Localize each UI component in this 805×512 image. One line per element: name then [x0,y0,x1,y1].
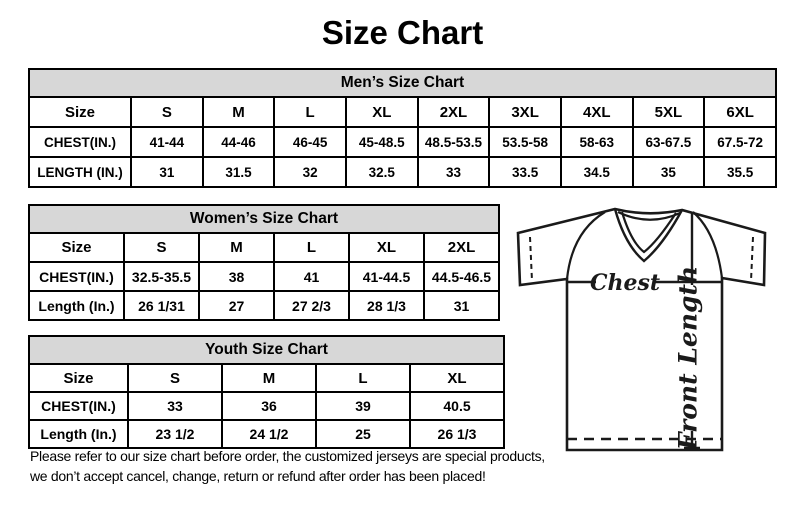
value-cell: 32 [274,157,346,187]
value-cell: 39 [316,392,410,420]
youth-size-table: Youth Size Chart SizeSMLXLCHEST(IN.)3336… [28,335,505,449]
value-cell: 25 [316,420,410,448]
womens-table-title: Women’s Size Chart [29,205,499,233]
value-cell: 36 [222,392,316,420]
table-row: Length (In.)23 1/224 1/22526 1/3 [29,420,504,448]
womens-size-table: Women’s Size Chart SizeSMLXL2XLCHEST(IN.… [28,204,500,321]
value-cell: S [128,364,222,392]
value-cell: 2XL [424,233,499,262]
womens-table-body: SizeSMLXL2XLCHEST(IN.)32.5-35.5384141-44… [29,233,499,320]
value-cell: 38 [199,262,274,291]
table-row: SizeSMLXL [29,364,504,392]
table-title-row: Women’s Size Chart [29,205,499,233]
value-cell: 41 [274,262,349,291]
value-cell: 26 1/3 [410,420,504,448]
value-cell: 31 [424,291,499,320]
value-cell: L [274,97,346,127]
chest-measure-label: Chest [590,270,660,296]
disclaimer-line-2: we don’t accept cancel, change, return o… [30,466,570,486]
table-row: SizeSMLXL2XL [29,233,499,262]
value-cell: 45-48.5 [346,127,418,157]
disclaimer-line-1: Please refer to our size chart before or… [30,446,570,466]
table-title-row: Men’s Size Chart [29,69,776,97]
value-cell: 32.5-35.5 [124,262,199,291]
table-row: CHEST(IN.)33363940.5 [29,392,504,420]
value-cell: 33 [418,157,490,187]
row-label-cell: Size [29,364,128,392]
value-cell: 44.5-46.5 [424,262,499,291]
value-cell: 35.5 [704,157,776,187]
value-cell: 46-45 [274,127,346,157]
value-cell: 41-44.5 [349,262,424,291]
value-cell: 27 2/3 [274,291,349,320]
table-title-row: Youth Size Chart [29,336,504,364]
value-cell: 33.5 [489,157,561,187]
value-cell: 31.5 [203,157,275,187]
value-cell: 27 [199,291,274,320]
row-label-cell: Length (In.) [29,420,128,448]
value-cell: 41-44 [131,127,203,157]
mens-size-table: Men’s Size Chart SizeSMLXL2XL3XL4XL5XL6X… [28,68,777,188]
table-row: Length (In.)26 1/312727 2/328 1/331 [29,291,499,320]
value-cell: L [316,364,410,392]
right-cuff-dashed-line [751,237,753,281]
value-cell: 24 1/2 [222,420,316,448]
value-cell: M [199,233,274,262]
value-cell: 6XL [704,97,776,127]
page-title: Size Chart [0,14,805,52]
value-cell: 67.5-72 [704,127,776,157]
value-cell: 35 [633,157,705,187]
value-cell: 26 1/31 [124,291,199,320]
value-cell: M [203,97,275,127]
value-cell: 3XL [489,97,561,127]
disclaimer-text: Please refer to our size chart before or… [30,446,570,486]
youth-table-body: SizeSMLXLCHEST(IN.)33363940.5Length (In.… [29,364,504,448]
table-row: SizeSMLXL2XL3XL4XL5XL6XL [29,97,776,127]
value-cell: 31 [131,157,203,187]
value-cell: 28 1/3 [349,291,424,320]
table-row: CHEST(IN.)32.5-35.5384141-44.544.5-46.5 [29,262,499,291]
value-cell: 58-63 [561,127,633,157]
tshirt-outline [518,209,765,450]
value-cell: 33 [128,392,222,420]
row-label-cell: CHEST(IN.) [29,262,124,291]
value-cell: 48.5-53.5 [418,127,490,157]
value-cell: 34.5 [561,157,633,187]
row-label-cell: CHEST(IN.) [29,127,131,157]
value-cell: M [222,364,316,392]
mens-table-body: SizeSMLXL2XL3XL4XL5XL6XLCHEST(IN.)41-444… [29,97,776,187]
tshirt-diagram: Chest Front Length [505,190,805,480]
front-length-measure-label: Front Length [674,266,703,451]
value-cell: 5XL [633,97,705,127]
row-label-cell: Length (In.) [29,291,124,320]
youth-table-title: Youth Size Chart [29,336,504,364]
value-cell: 23 1/2 [128,420,222,448]
value-cell: 32.5 [346,157,418,187]
value-cell: XL [349,233,424,262]
value-cell: 2XL [418,97,490,127]
value-cell: XL [410,364,504,392]
value-cell: 63-67.5 [633,127,705,157]
value-cell: S [131,97,203,127]
row-label-cell: LENGTH (IN.) [29,157,131,187]
value-cell: L [274,233,349,262]
left-cuff-dashed-line [530,237,532,281]
value-cell: 40.5 [410,392,504,420]
value-cell: S [124,233,199,262]
value-cell: 4XL [561,97,633,127]
value-cell: 44-46 [203,127,275,157]
row-label-cell: Size [29,97,131,127]
value-cell: 53.5-58 [489,127,561,157]
value-cell: XL [346,97,418,127]
row-label-cell: Size [29,233,124,262]
left-sleeve-seam [567,212,605,279]
table-row: CHEST(IN.)41-4444-4646-4545-48.548.5-53.… [29,127,776,157]
table-row: LENGTH (IN.)3131.53232.53333.534.53535.5 [29,157,776,187]
mens-table-title: Men’s Size Chart [29,69,776,97]
row-label-cell: CHEST(IN.) [29,392,128,420]
